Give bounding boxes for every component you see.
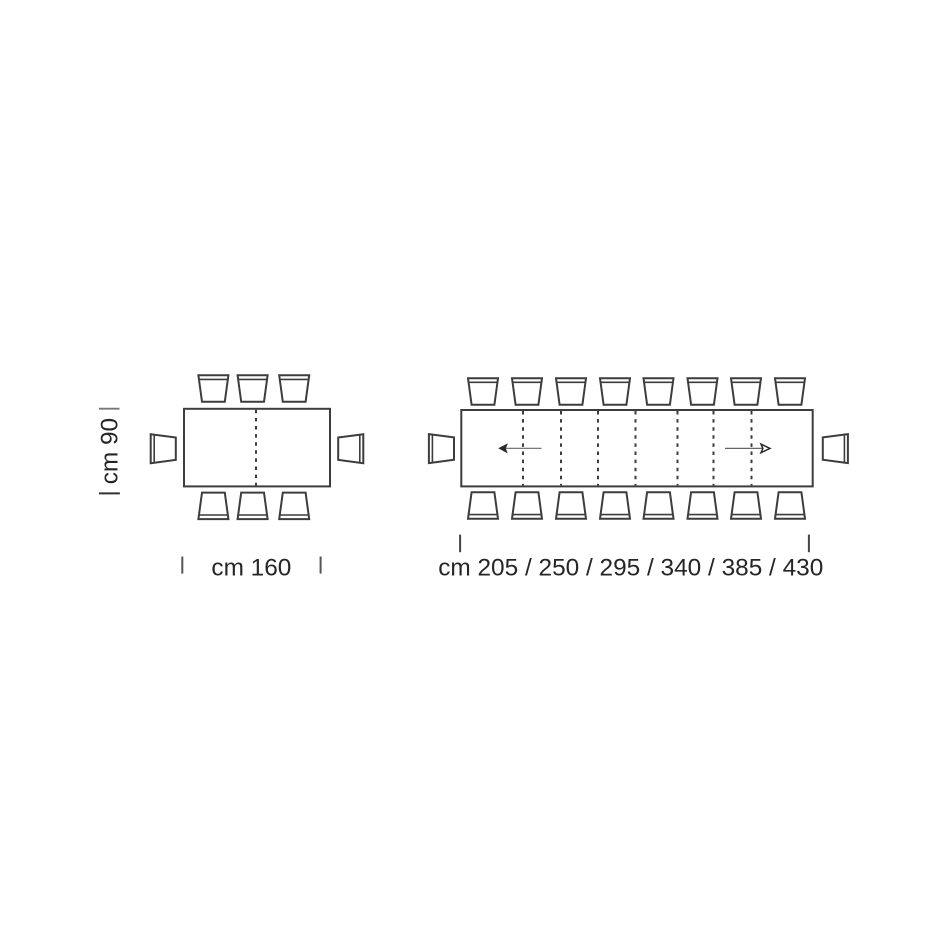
svg-text:cm 205 / 250 / 295 / 340 / 385: cm 205 / 250 / 295 / 340 / 385 / 430 [438, 555, 823, 582]
svg-text:cm 90: cm 90 [96, 418, 123, 484]
svg-text:cm 160: cm 160 [211, 555, 291, 582]
